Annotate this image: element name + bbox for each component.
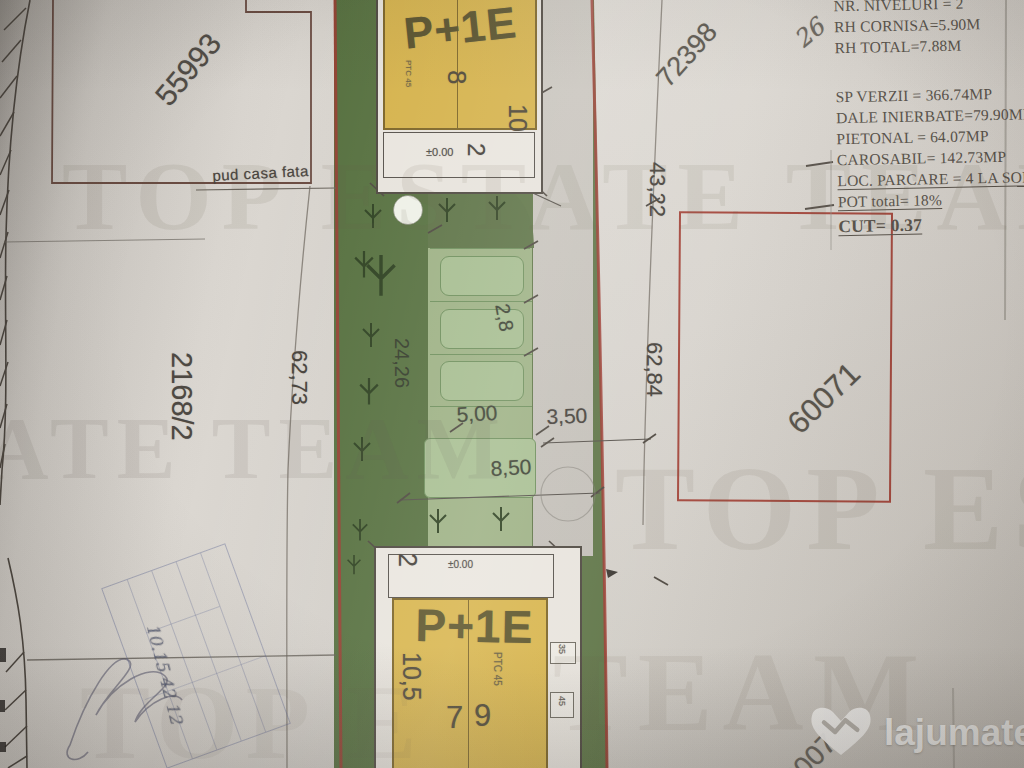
dim-left-boundary: 62,73 [288,350,310,405]
spec-block: NR. NIVELURI = 2 RH CORNISA=5.90M RH TOT… [834,0,1024,237]
bottom-building-dim-width: 10,5 [399,652,424,701]
lajumate-heart-icon [804,704,878,760]
bottom-building-level: ±0.00 [448,560,473,570]
site-plan-photo: 55993 72398 2168/2 60071 6007 26 pud cas… [0,0,1024,768]
top-building-entry-strip [383,132,535,178]
stall-separator [430,354,532,355]
dim-right-upper: 43,22 [646,162,668,217]
bottom-building-unit-right: 9 [474,700,491,731]
top-building-dim-front: 2 [464,143,488,156]
top-building-label: P+1E [402,0,519,56]
bottom-building-margin-a: 35 [557,644,566,654]
dim-drive: 8,50 [490,456,532,479]
parking-stall [440,256,524,296]
top-building-dim-bay: 8 [444,70,470,84]
bottom-building-label: P+1E [415,602,534,650]
stall-separator [430,248,530,249]
dim-green-length: 24,26 [392,338,412,388]
bottom-building-unit-left: 7 [446,702,463,733]
top-building-dim-width: 10 [505,104,530,132]
bottom-building-note: PTC 45 [492,652,502,686]
dim-right-boundary: 62,84 [643,342,665,397]
top-building-level: ±0.00 [426,147,453,158]
bottom-building-margin-b: 45 [557,696,566,706]
parcel-60071-outline [677,211,893,502]
parcel-number-left: 2168/2 [167,352,196,441]
dim-sidewalk: 3,50 [546,405,588,427]
top-building-note: PTC 45 [404,60,412,87]
logo-text: lajumate [884,712,1024,753]
bottom-building-dim-front: 2 [395,553,420,567]
parking-stall [440,361,524,401]
spec-line: POT total= 18% [838,189,1024,215]
site-logo: lajumate.ro [804,704,1024,760]
spec-line: CUT= 0.37 [838,212,1024,238]
dim-stall-width: 2,8 [492,302,517,333]
stall-separator [430,301,532,302]
dim-stall-length: 5,00 [456,402,498,425]
